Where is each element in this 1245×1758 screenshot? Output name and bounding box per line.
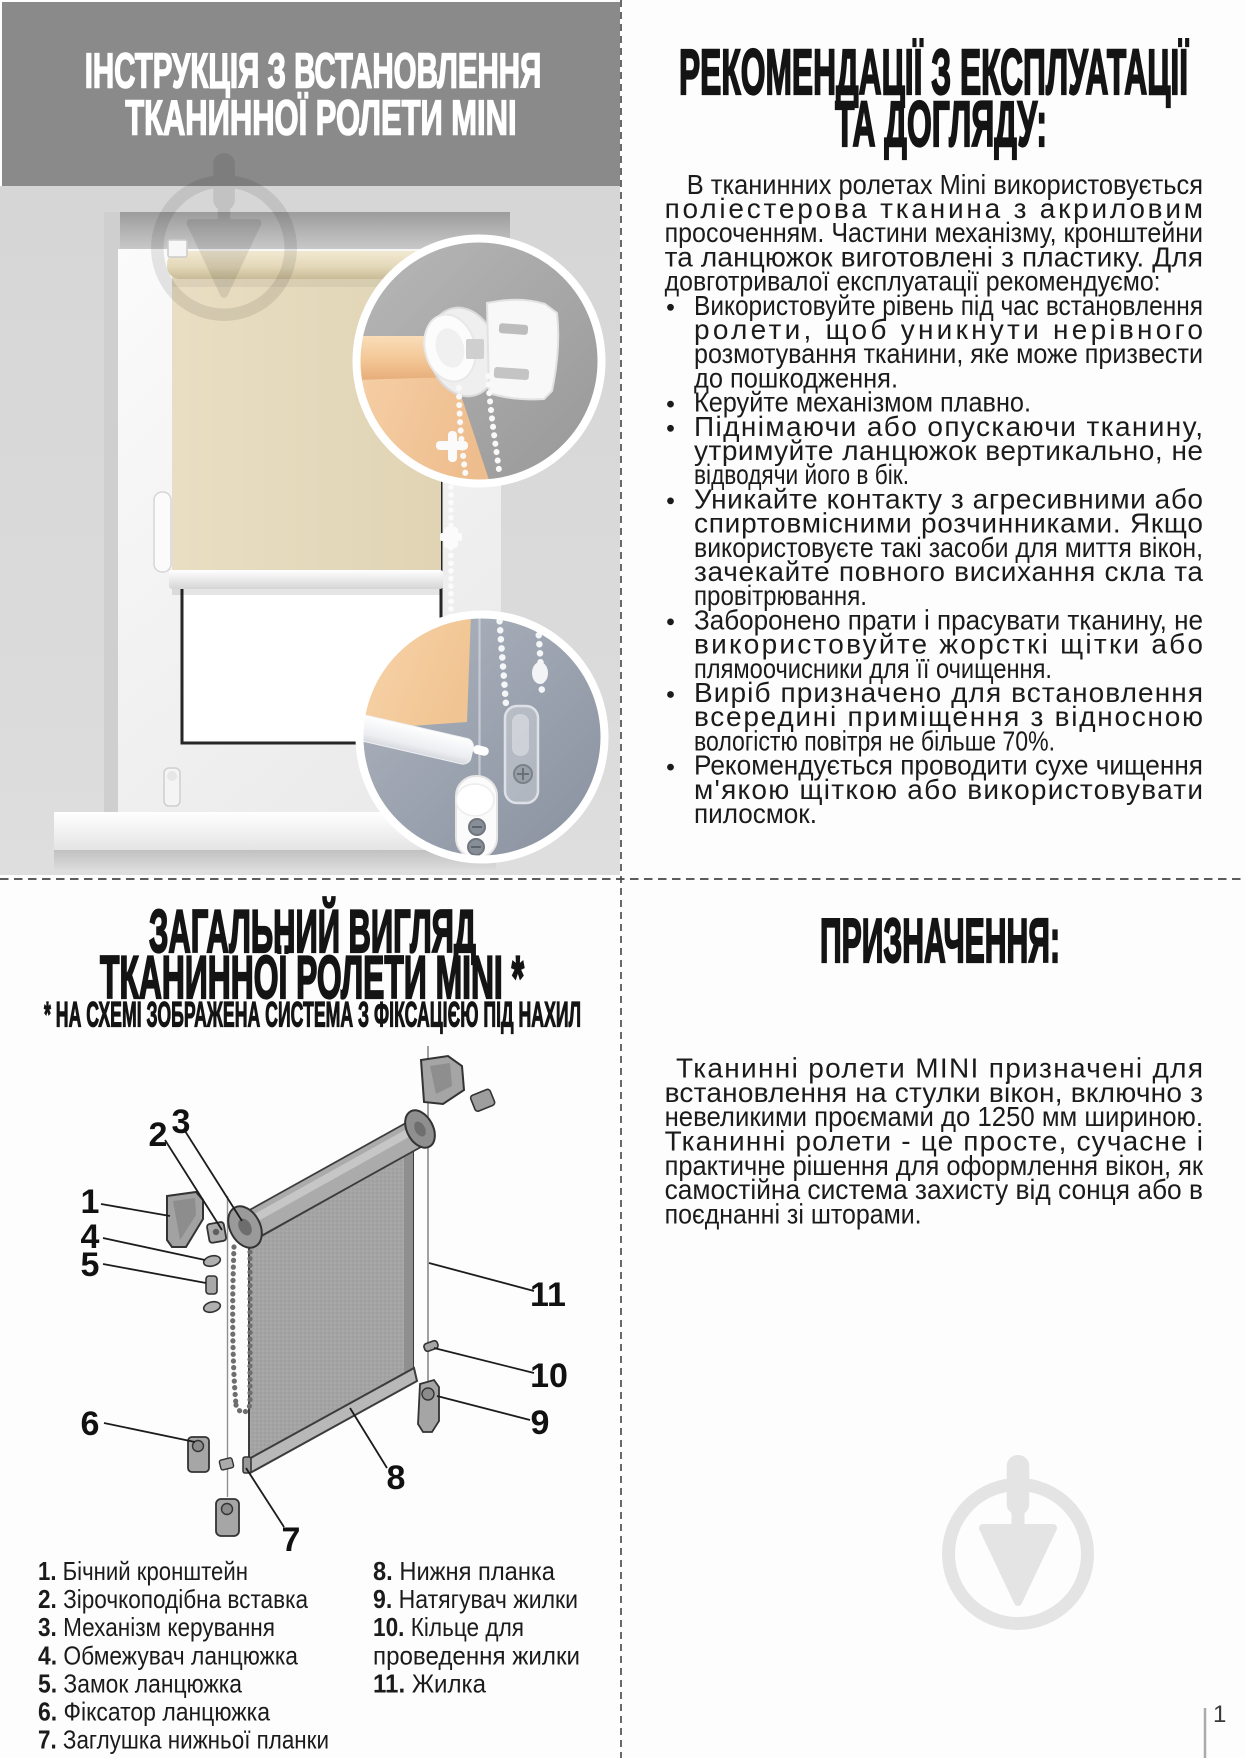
- svg-text:поєднанні зі шторами.: поєднанні зі шторами.: [665, 1198, 922, 1229]
- svg-text:9: 9: [531, 1404, 550, 1442]
- svg-text:10: 10: [530, 1357, 568, 1395]
- svg-text:3: 3: [172, 1103, 191, 1141]
- svg-text:* НА СХЕМІ ЗОБРАЖЕНА СИСТЕМА З: * НА СХЕМІ ЗОБРАЖЕНА СИСТЕМА З ФІКСАЦІЄЮ…: [44, 996, 581, 1035]
- svg-text:ПРИЗНАЧЕННЯ:: ПРИЗНАЧЕННЯ:: [820, 907, 1060, 976]
- svg-text:4. Обмежувач ланцюжка: 4. Обмежувач ланцюжка: [38, 1640, 298, 1670]
- svg-text:11. Жилка: 11. Жилка: [373, 1668, 486, 1698]
- svg-text:3. Механізм керування: 3. Механізм керування: [38, 1612, 275, 1642]
- svg-text:2: 2: [149, 1116, 168, 1154]
- svg-text:9. Натягувач жилки: 9. Натягувач жилки: [373, 1584, 578, 1614]
- svg-text:11: 11: [530, 1276, 566, 1314]
- svg-text:2. Зірочкоподібна вставка: 2. Зірочкоподібна вставка: [38, 1584, 308, 1614]
- svg-text:8. Нижня планка: 8. Нижня планка: [373, 1556, 555, 1586]
- svg-text:ТА ДОГЛЯДУ:: ТА ДОГЛЯДУ:: [835, 88, 1047, 160]
- svg-text:ТКАНИННОЇ РОЛЕТИ MINI: ТКАНИННОЇ РОЛЕТИ MINI: [125, 91, 516, 145]
- svg-text:проведення жилки: проведення жилки: [373, 1640, 580, 1670]
- svg-text:6. Фіксатор ланцюжка: 6. Фіксатор ланцюжка: [38, 1697, 270, 1727]
- svg-text:7. Заглушка нижньої планки: 7. Заглушка нижньої планки: [38, 1725, 329, 1755]
- svg-text:5: 5: [81, 1246, 100, 1284]
- svg-text:1: 1: [81, 1183, 100, 1221]
- svg-text:5. Замок ланцюжка: 5. Замок ланцюжка: [38, 1668, 242, 1698]
- svg-text:пилосмок.: пилосмок.: [694, 798, 817, 829]
- svg-text:10. Кільце для: 10. Кільце для: [373, 1612, 524, 1642]
- svg-text:1: 1: [1213, 1701, 1226, 1728]
- svg-text:8: 8: [387, 1459, 406, 1497]
- svg-text:1. Бічний кронштейн: 1. Бічний кронштейн: [38, 1556, 248, 1586]
- svg-text:7: 7: [282, 1521, 301, 1559]
- svg-text:6: 6: [81, 1405, 100, 1443]
